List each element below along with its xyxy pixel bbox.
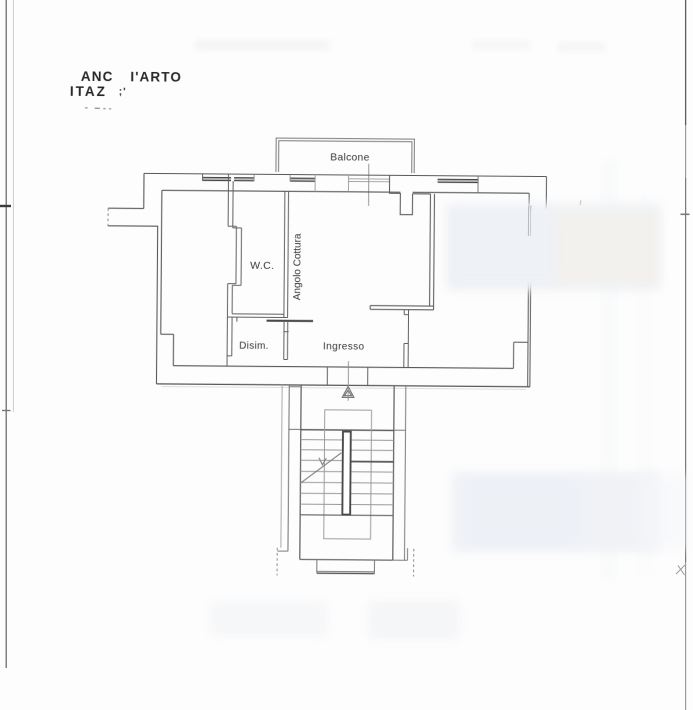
svg-text:I'ARTO: I'ARTO xyxy=(130,69,182,84)
svg-text:Ingresso: Ingresso xyxy=(323,341,365,352)
svg-text:Angolo Cottura: Angolo Cottura xyxy=(292,233,304,300)
svg-text:W.C.: W.C. xyxy=(250,260,274,272)
svg-text:;': ;' xyxy=(119,87,127,98)
svg-text:Disim.: Disim. xyxy=(239,341,269,352)
svg-text:ANC: ANC xyxy=(81,69,114,84)
svg-text:Balcone: Balcone xyxy=(330,152,369,163)
svg-text:ITAZ: ITAZ xyxy=(70,84,107,99)
